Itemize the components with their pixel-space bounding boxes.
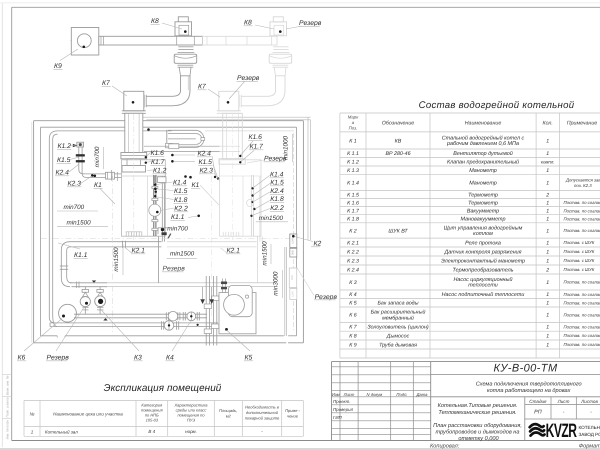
svg-text:К2.4: К2.4: [270, 188, 284, 195]
svg-text:ЗКВ: ЗКВ: [291, 250, 294, 255]
svg-text:ВР 280-46: ВР 280-46: [385, 151, 410, 157]
svg-text:Постав. с ШУК: Постав. с ШУК: [564, 267, 595, 272]
svg-text:К 7: К 7: [349, 325, 357, 331]
svg-text:К1.1: К1.1: [171, 214, 185, 221]
svg-text:ШУК: ШУК: [291, 291, 294, 297]
svg-text:ПУЭ: ПУЭ: [187, 418, 196, 423]
svg-text:ГИП: ГИП: [333, 415, 343, 420]
svg-text:К1.6: К1.6: [249, 134, 263, 141]
svg-text:1: 1: [546, 342, 549, 348]
svg-text:К8: К8: [244, 20, 252, 27]
svg-text:Котельная.Типовые решения.: Котельная.Типовые решения.: [438, 403, 518, 409]
svg-text:К 8: К 8: [349, 333, 356, 339]
svg-text:Термопреобразователь: Термопреобразователь: [453, 267, 514, 273]
svg-text:мембранный: мембранный: [382, 315, 414, 321]
svg-text:К 1: К 1: [349, 138, 356, 144]
svg-text:Схема подключения твердотоплив: Схема подключения твердотопливного: [476, 380, 582, 387]
svg-text:Постав. по соглас: Постав. по соглас: [564, 300, 600, 305]
svg-text:К3: К3: [134, 355, 142, 362]
svg-text:чение: чение: [287, 414, 299, 419]
svg-text:1: 1: [546, 292, 549, 298]
svg-text:Наименование цеха или участка: Наименование цеха или участка: [53, 412, 123, 417]
svg-text:1: 1: [546, 180, 549, 186]
svg-text:Труба дымовая: Труба дымовая: [379, 342, 417, 348]
svg-text:2: 2: [545, 192, 549, 198]
svg-text:К1.5: К1.5: [270, 180, 284, 187]
svg-text:Постав. по соглас: Постав. по соглас: [564, 280, 600, 285]
svg-text:К 2.2: К 2.2: [347, 249, 359, 255]
svg-text:1: 1: [546, 301, 549, 307]
svg-text:норм.: норм.: [185, 429, 197, 434]
svg-text:К 1.4: К 1.4: [347, 180, 359, 186]
svg-text:Датчик контроля разряжения: Датчик контроля разряжения: [443, 249, 521, 255]
svg-text:Постав. по соглас: Постав. по соглас: [564, 333, 600, 338]
svg-text:min1500: min1500: [262, 241, 269, 266]
svg-text:К 6: К 6: [349, 313, 356, 319]
svg-text:Насос подпиточный теплосети: Насос подпиточный теплосети: [442, 292, 525, 298]
svg-text:1: 1: [546, 208, 549, 214]
svg-text:min1500: min1500: [113, 247, 120, 272]
svg-text:Постав. с ШУК: Постав. с ШУК: [564, 249, 595, 254]
svg-text:Термометр: Термометр: [468, 192, 498, 198]
svg-text:1: 1: [546, 217, 549, 223]
svg-text:ЗКВ: ЗКВ: [291, 275, 294, 280]
svg-text:Взам. инв. №: Взам. инв. №: [6, 375, 10, 395]
svg-text:В 4: В 4: [148, 429, 155, 434]
svg-text:Состав водогрейной котельной: Состав водогрейной котельной: [419, 100, 575, 111]
svg-text:Золоуловитель (циклон): Золоуловитель (циклон): [367, 325, 429, 331]
svg-text:К 1.2: К 1.2: [347, 160, 359, 166]
svg-text:Изм: Изм: [332, 392, 340, 397]
svg-text:Проверил: Проверил: [333, 407, 354, 412]
svg-text:KVZR: KVZR: [546, 420, 577, 442]
svg-text:Необходимость в: Необходимость в: [245, 405, 279, 410]
svg-text:Поз.: Поз.: [349, 126, 358, 131]
svg-text:котла работающего на дровах: котла работающего на дровах: [487, 387, 571, 394]
svg-text:котлом: котлом: [473, 231, 493, 237]
svg-text:Лист: Лист: [343, 392, 355, 397]
svg-text:План расстановки оборудования,: План расстановки оборудования,: [433, 422, 522, 429]
svg-text:К 2.3: К 2.3: [347, 258, 359, 264]
svg-text:КВ: КВ: [395, 138, 402, 144]
svg-text:Приме -: Приме -: [285, 408, 300, 413]
svg-text:К5: К5: [245, 355, 253, 362]
svg-text:К8: К8: [151, 18, 159, 25]
svg-text:Дата: Дата: [415, 392, 428, 397]
svg-text:К2.1: К2.1: [227, 248, 241, 255]
svg-text:1: 1: [546, 151, 549, 157]
svg-text:К1.7: К1.7: [151, 159, 165, 166]
svg-text:пожарной защите: пожарной защите: [245, 416, 280, 421]
svg-text:1: 1: [546, 280, 549, 286]
svg-text:К2: К2: [314, 241, 322, 248]
svg-text:Постав. по соглас: Постав. по соглас: [564, 324, 600, 329]
svg-text:К1.4: К1.4: [270, 172, 284, 179]
svg-text:1: 1: [546, 138, 549, 144]
svg-text:Постав. по соглас: Постав. по соглас: [564, 216, 600, 221]
svg-text:Копировал:: Копировал:: [430, 444, 460, 450]
svg-text:К1.8: К1.8: [270, 196, 284, 203]
svg-text:КОТЕЛЬНЫЙ: КОТЕЛЬНЫЙ: [579, 424, 600, 430]
svg-text:1: 1: [546, 168, 549, 174]
svg-text:Подп.: Подп.: [396, 392, 407, 397]
svg-text:Инв. № подл.: Инв. № подл.: [6, 419, 10, 439]
svg-text:Стадия: Стадия: [529, 399, 547, 404]
svg-text:Постав. по соглас: Постав. по соглас: [564, 292, 600, 297]
svg-text:-: -: [563, 410, 565, 416]
svg-text:К7: К7: [102, 80, 110, 87]
svg-text:отметку 0,000: отметку 0,000: [458, 436, 499, 442]
svg-text:К1.8: К1.8: [174, 197, 188, 204]
svg-text:ШУК ВТ: ШУК ВТ: [388, 228, 408, 234]
svg-text:2: 2: [545, 267, 549, 273]
svg-text:К 4: К 4: [349, 292, 356, 298]
svg-text:рабочим давлением 0,6 МПа: рабочим давлением 0,6 МПа: [446, 141, 519, 147]
svg-text:компл.: компл.: [541, 160, 555, 165]
svg-text:К 1.3: К 1.3: [347, 168, 359, 174]
svg-text:К2.2: К2.2: [174, 206, 188, 213]
svg-text:К9: К9: [54, 63, 62, 70]
svg-text:трубопроводов и дымоходов на: трубопроводов и дымоходов на: [436, 429, 520, 436]
svg-text:Постав. по соглас: Постав. по соглас: [564, 200, 600, 205]
svg-text:Котельный зал: Котельный зал: [45, 430, 78, 435]
svg-text:Реле протока: Реле протока: [465, 240, 501, 246]
svg-text:-: -: [590, 410, 592, 416]
svg-text:К2.4: К2.4: [198, 151, 212, 158]
svg-text:Постав. по соглас: Постав. по соглас: [564, 228, 600, 233]
svg-text:Мановакуумметр: Мановакуумметр: [461, 217, 506, 223]
svg-text:Резерв: Резерв: [47, 355, 70, 362]
svg-text:К2.4: К2.4: [56, 170, 70, 177]
svg-text:К 1.7: К 1.7: [347, 208, 360, 214]
svg-text:N докум: N докум: [367, 392, 383, 397]
svg-text:Проект.: Проект.: [333, 399, 350, 404]
svg-text:К2.2: К2.2: [270, 205, 284, 212]
svg-text:min1500: min1500: [259, 215, 284, 222]
svg-text:Постав. с ШУК: Постав. с ШУК: [564, 240, 595, 245]
svg-text:Постав. с ШУК: Постав. с ШУК: [564, 258, 595, 263]
svg-text:К2.1: К2.1: [132, 248, 146, 255]
svg-text:К1.1: К1.1: [74, 252, 88, 259]
svg-text:К 2.1: К 2.1: [347, 240, 359, 246]
svg-text:теплосети: теплосети: [468, 283, 498, 289]
svg-text:Резерв: Резерв: [163, 266, 186, 273]
svg-text:дополнительной: дополнительной: [246, 410, 279, 415]
svg-text:К1.4: К1.4: [173, 180, 187, 187]
svg-text:Наименование: Наименование: [465, 121, 502, 127]
svg-text:К1.5: К1.5: [199, 159, 213, 166]
svg-text:К2.3: К2.3: [200, 168, 214, 175]
svg-text:К 2.4: К 2.4: [347, 267, 359, 273]
svg-text:К 3: К 3: [349, 280, 356, 286]
svg-text:К 1.5: К 1.5: [347, 192, 359, 198]
svg-text:Клапан предохранительный: Клапан предохранительный: [447, 160, 519, 166]
svg-text:Резерв: Резерв: [237, 75, 260, 82]
svg-text:К 5: К 5: [349, 301, 356, 307]
svg-text:Термометр: Термометр: [468, 200, 498, 206]
svg-text:Постав. по соглас: Постав. по соглас: [564, 312, 600, 317]
svg-text:Манометр: Манометр: [469, 180, 497, 186]
svg-text:К6: К6: [18, 355, 26, 362]
svg-text:К4: К4: [166, 355, 174, 362]
svg-text:К1.2: К1.2: [58, 143, 72, 150]
svg-text:Обозначение: Обозначение: [382, 121, 415, 127]
svg-text:К1: К1: [192, 182, 200, 189]
svg-text:Кол.: Кол.: [542, 121, 552, 127]
svg-text:Дымосос: Дымосос: [386, 333, 410, 339]
svg-text:1: 1: [546, 313, 549, 319]
svg-text:Резерв: Резерв: [299, 20, 322, 27]
svg-text:К7: К7: [198, 84, 206, 91]
svg-text:м2: м2: [226, 414, 232, 419]
svg-text:Марк: Марк: [348, 115, 359, 120]
svg-text:Вакуумметр: Вакуумметр: [467, 208, 499, 214]
svg-text:min700: min700: [167, 226, 188, 233]
svg-text:№: №: [30, 412, 35, 417]
svg-text:К 2: К 2: [349, 228, 356, 234]
svg-text:К2.3: К2.3: [68, 181, 82, 188]
svg-text:min1500: min1500: [170, 250, 195, 257]
svg-text:Постав. по соглас: Постав. по соглас: [564, 208, 600, 213]
svg-text:Площадь,: Площадь,: [219, 408, 237, 413]
svg-text:Формат: Формат: [579, 444, 600, 450]
svg-text:К 9: К 9: [349, 342, 356, 348]
svg-text:1: 1: [546, 333, 549, 339]
svg-text:1: 1: [546, 249, 549, 255]
svg-text:1: 1: [546, 228, 549, 234]
svg-text:min700: min700: [64, 204, 85, 211]
svg-text:Манометр: Манометр: [469, 168, 497, 174]
svg-text:КУ-В-00-ТМ: КУ-В-00-ТМ: [493, 363, 558, 375]
svg-text:К1.6: К1.6: [151, 150, 165, 157]
svg-text:РП: РП: [534, 410, 542, 416]
svg-text:min1000: min1000: [283, 135, 290, 160]
svg-text:1: 1: [546, 200, 549, 206]
svg-text:Экспликация помещений: Экспликация помещений: [104, 383, 222, 394]
svg-text:К1.2: К1.2: [153, 168, 167, 175]
svg-text:К1.5: К1.5: [57, 157, 71, 164]
svg-text:Вентилятор дутьевой: Вентилятор дутьевой: [453, 151, 513, 157]
svg-text:поз. К2.3: поз. К2.3: [574, 183, 592, 188]
svg-text:Листов: Листов: [580, 399, 598, 404]
svg-text:1: 1: [546, 325, 549, 331]
svg-text:К1.5: К1.5: [174, 188, 188, 195]
svg-text:Подп. и дата: Подп. и дата: [6, 397, 10, 417]
svg-text:Постав. по соглас: Постав. по соглас: [564, 342, 600, 347]
svg-text:Допускается зам: Допускается зам: [565, 177, 600, 182]
svg-text:К 1.8: К 1.8: [347, 217, 359, 223]
svg-text:К 1.1: К 1.1: [347, 151, 359, 157]
svg-text:К1: К1: [94, 182, 102, 189]
svg-text:Примечание: Примечание: [567, 121, 598, 127]
svg-text:Электроконтактный манометр: Электроконтактный манометр: [441, 258, 525, 264]
svg-text:min700: min700: [94, 146, 101, 167]
svg-text:min1500: min1500: [67, 219, 92, 226]
svg-text:К1.7: К1.7: [250, 144, 264, 151]
svg-text:1: 1: [546, 240, 549, 246]
svg-text:Лист: Лист: [557, 399, 570, 404]
svg-text:Бак запаса воды: Бак запаса воды: [377, 301, 418, 307]
svg-text:1: 1: [546, 258, 549, 264]
svg-text:Тепломеханические решения.: Тепломеханические решения.: [438, 410, 516, 416]
svg-text:К 1.6: К 1.6: [347, 200, 359, 206]
svg-text:105-03: 105-03: [146, 418, 159, 423]
svg-text:ШУК: ШУК: [291, 238, 294, 244]
svg-text:min3000: min3000: [273, 271, 280, 296]
svg-text:ЗАВОД РОС: ЗАВОД РОС: [579, 432, 600, 437]
